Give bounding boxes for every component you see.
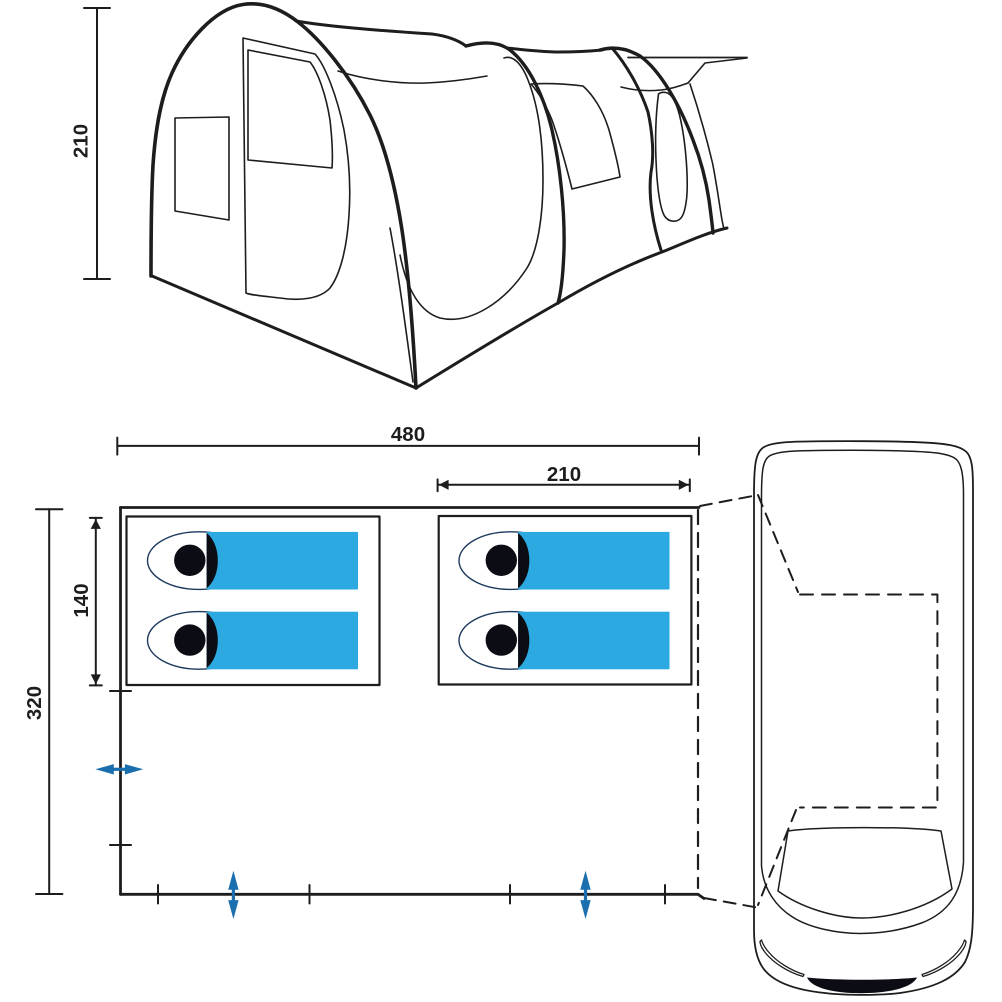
svg-text:210: 210: [547, 463, 581, 486]
svg-text:140: 140: [70, 583, 93, 617]
svg-text:480: 480: [391, 423, 425, 446]
svg-text:320: 320: [23, 686, 46, 720]
svg-text:210: 210: [69, 124, 92, 158]
